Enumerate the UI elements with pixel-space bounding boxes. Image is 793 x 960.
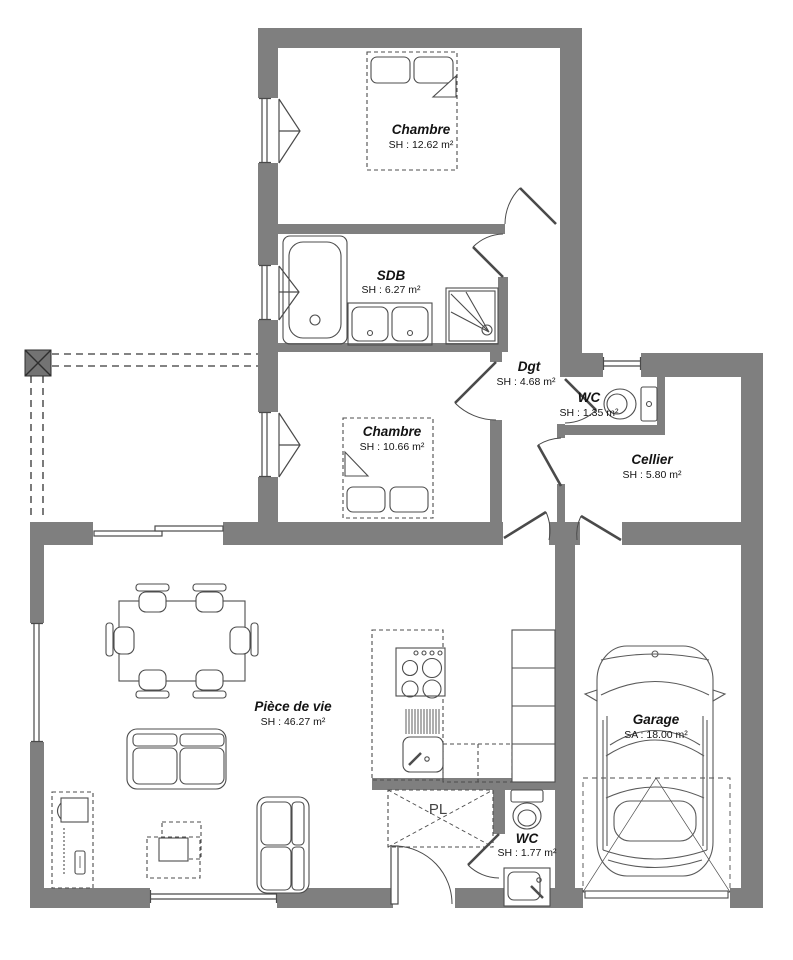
double-sink xyxy=(348,303,432,345)
sofa-vertical xyxy=(257,797,309,893)
toilet-wc2 xyxy=(511,790,543,829)
label-chambre1: Chambre xyxy=(392,122,451,137)
door-entrance xyxy=(391,846,452,904)
terrace-outline xyxy=(31,354,258,517)
tv-unit xyxy=(52,792,93,888)
window-chambre2 xyxy=(259,412,300,477)
door-chambre1 xyxy=(505,188,556,224)
dining-table xyxy=(119,601,245,681)
label-wc2: WC xyxy=(516,831,539,846)
sofa-horizontal xyxy=(127,729,226,789)
terrace-post xyxy=(25,350,51,376)
area-chambre1: SH : 12.62 m² xyxy=(389,139,454,151)
area-garage: SA : 18.00 m² xyxy=(624,729,688,741)
shower xyxy=(446,288,498,344)
door-sdb xyxy=(473,234,503,277)
sliding-door-panel xyxy=(155,526,223,531)
label-piece-de-vie: Pièce de vie xyxy=(254,699,332,714)
sliding-door-panel xyxy=(94,531,162,536)
area-wc1: SH : 1.35 m² xyxy=(560,407,619,419)
door-dgt-living xyxy=(504,512,550,540)
area-chambre2: SH : 10.66 m² xyxy=(360,441,425,453)
drainboard xyxy=(406,709,439,734)
label-wc1: WC xyxy=(578,390,601,405)
label-garage: Garage xyxy=(633,712,680,727)
label-cellier: Cellier xyxy=(631,452,673,467)
window-living-bottom xyxy=(150,890,277,903)
window-sdb xyxy=(259,265,299,320)
window-chambre1 xyxy=(259,98,300,163)
door-cellier xyxy=(538,438,561,486)
label-chambre2: Chambre xyxy=(363,424,422,439)
area-cellier: SH : 5.80 m² xyxy=(623,469,682,481)
car-top-view xyxy=(585,646,725,876)
label-pl: PL xyxy=(429,801,447,818)
stove xyxy=(396,648,445,698)
bed-chambre1 xyxy=(367,52,457,170)
garage-door xyxy=(583,778,730,898)
kitchen-sink xyxy=(403,737,443,772)
area-sdb: SH : 6.27 m² xyxy=(362,284,421,296)
kitchen-cabinets xyxy=(512,630,555,782)
area-dgt: SH : 4.68 m² xyxy=(497,376,556,388)
floor-plan: Chambre SH : 12.62 m² SDB SH : 6.27 m² D… xyxy=(0,0,793,960)
door-wc2 xyxy=(468,834,499,878)
door-cellier-garage xyxy=(577,516,621,540)
washbasin xyxy=(504,868,550,906)
label-dgt: Dgt xyxy=(518,359,541,374)
bathtub xyxy=(283,236,347,344)
coffee-table xyxy=(147,822,201,878)
area-wc2: SH : 1.77 m² xyxy=(498,847,557,859)
closet-pl xyxy=(388,790,493,847)
label-sdb: SDB xyxy=(377,268,406,283)
door-chambre2 xyxy=(455,362,496,420)
floor-plan-drawing: Chambre SH : 12.62 m² SDB SH : 6.27 m² D… xyxy=(0,0,793,960)
area-piece-de-vie: SH : 46.27 m² xyxy=(261,716,326,728)
window-living-left xyxy=(31,623,43,742)
window-wc1 xyxy=(603,357,641,370)
